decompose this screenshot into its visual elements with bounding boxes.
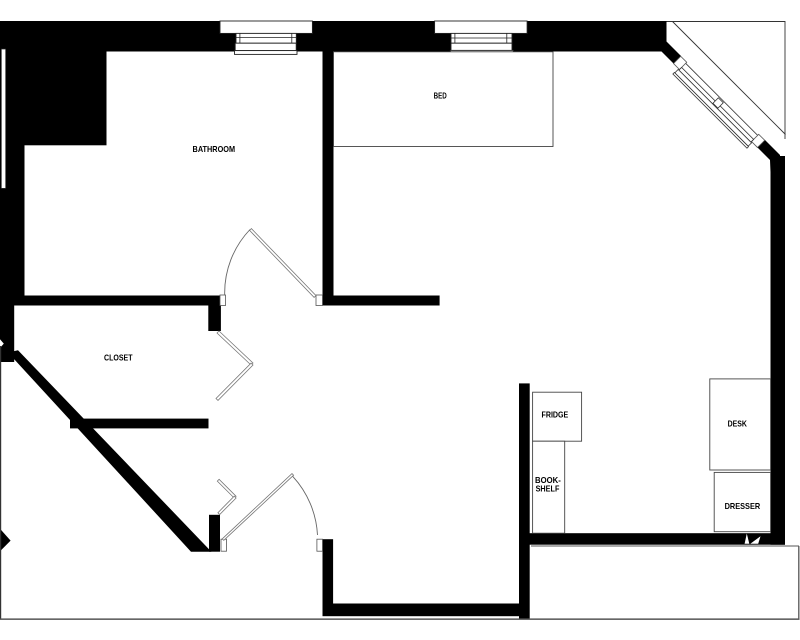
svg-text:DRESSER: DRESSER <box>725 501 761 511</box>
svg-text:DESK: DESK <box>728 419 748 429</box>
svg-text:SHELF: SHELF <box>536 484 560 494</box>
svg-text:BATHROOM: BATHROOM <box>193 144 236 154</box>
svg-text:FRIDGE: FRIDGE <box>542 410 569 420</box>
svg-text:BED: BED <box>434 91 447 101</box>
svg-text:CLOSET: CLOSET <box>104 353 133 363</box>
